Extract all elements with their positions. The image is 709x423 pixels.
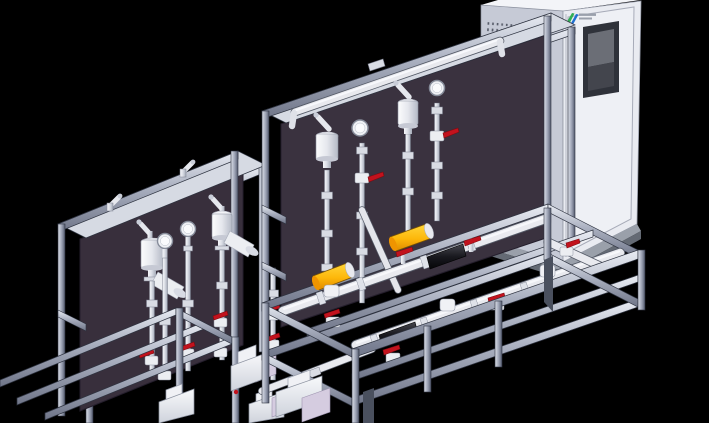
center-frame-back-right-post [568, 27, 575, 242]
corner-gusset [363, 388, 374, 423]
table-leg [352, 349, 359, 423]
pipe-union [147, 300, 158, 307]
table-leg [495, 301, 502, 367]
hmi-screen-lower [588, 62, 614, 91]
table-leg [424, 326, 431, 392]
scene-3d-render [0, 0, 709, 423]
table-leg [638, 250, 645, 310]
valve-dome [324, 285, 339, 297]
table-leg [544, 208, 551, 260]
table-leg [262, 303, 269, 403]
logo-text-bar-1 [579, 14, 596, 16]
pipe-union [183, 300, 194, 307]
render-stage [0, 0, 709, 423]
header-elbow-left [292, 113, 294, 126]
valve-dome [440, 299, 455, 311]
pipe-union [217, 282, 228, 289]
center-frame-front-right-post [544, 16, 551, 208]
hmi-screen-display[interactable] [588, 29, 614, 67]
header-elbow-right [500, 42, 502, 54]
logo-text-bar-2 [579, 18, 592, 20]
